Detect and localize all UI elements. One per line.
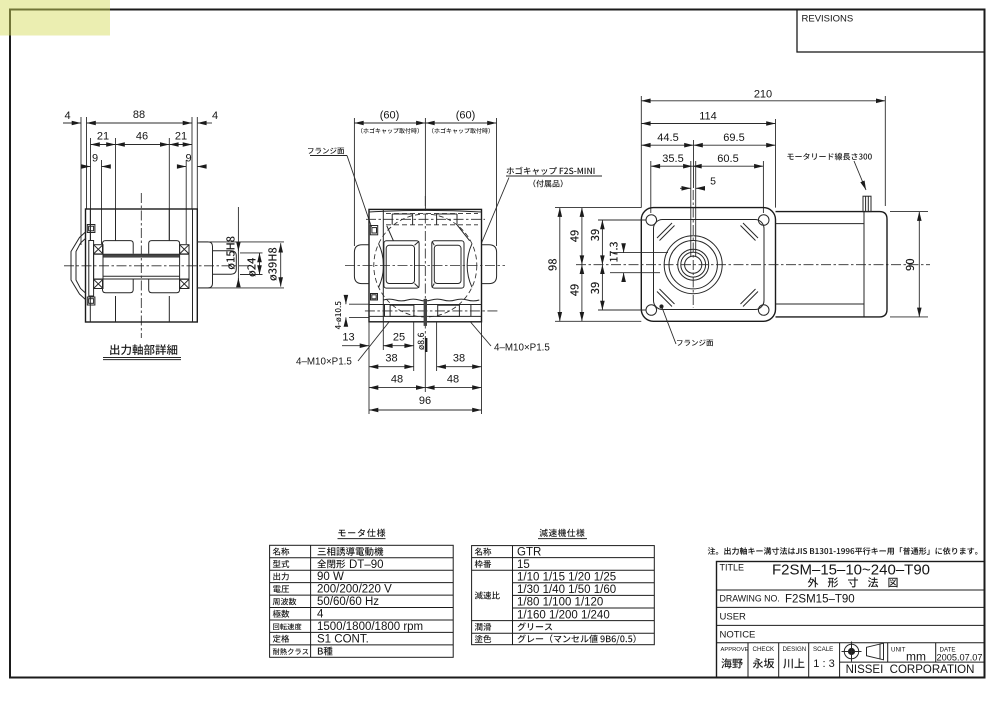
svg-text:REVISIONS: REVISIONS <box>802 14 854 25</box>
svg-text:4–M10×P1.5: 4–M10×P1.5 <box>296 357 352 368</box>
svg-text:46: 46 <box>136 131 148 143</box>
svg-text:38: 38 <box>385 353 397 365</box>
svg-text:SCALE: SCALE <box>813 646 833 653</box>
svg-text:114: 114 <box>699 111 717 123</box>
svg-text:1/10 1/15 1/20 1/25: 1/10 1/15 1/20 1/25 <box>517 572 616 584</box>
svg-text:48: 48 <box>391 374 403 386</box>
svg-text:GTR: GTR <box>517 547 541 559</box>
svg-text:DESIGN: DESIGN <box>783 646 807 653</box>
svg-text:4: 4 <box>317 609 324 621</box>
svg-text:1/160 1/200 1/240: 1/160 1/200 1/240 <box>517 609 610 621</box>
svg-text:NOTICE: NOTICE <box>720 630 756 641</box>
svg-text:200/200/220 V: 200/200/220 V <box>317 584 392 596</box>
svg-text:CHECK: CHECK <box>753 646 776 653</box>
svg-text:96: 96 <box>419 395 431 407</box>
svg-text:2005.07.07: 2005.07.07 <box>937 653 983 663</box>
svg-text:88: 88 <box>133 109 145 121</box>
svg-text:21: 21 <box>175 131 187 143</box>
svg-text:1500/1800/1800 rpm: 1500/1800/1800 rpm <box>317 621 423 633</box>
svg-text:60.5: 60.5 <box>717 153 738 165</box>
svg-text:APPROVE: APPROVE <box>721 647 749 653</box>
svg-text:TITLE: TITLE <box>720 563 745 573</box>
svg-text:S1 CONT.: S1 CONT. <box>317 633 369 645</box>
svg-text:1/80 1/100 1/120: 1/80 1/100 1/120 <box>517 597 603 609</box>
svg-text:USER: USER <box>720 612 747 623</box>
svg-text:(60): (60) <box>380 110 400 122</box>
svg-text:9: 9 <box>92 153 98 165</box>
svg-text:4: 4 <box>64 110 70 122</box>
svg-text:69.5: 69.5 <box>723 132 744 144</box>
svg-text:(60): (60) <box>456 110 476 122</box>
svg-text:15: 15 <box>517 559 530 571</box>
svg-text:210: 210 <box>754 89 772 101</box>
svg-text:UNIT: UNIT <box>891 647 906 654</box>
svg-text:48: 48 <box>447 374 459 386</box>
svg-text:90 W: 90 W <box>317 571 344 583</box>
svg-text:mm: mm <box>906 650 926 664</box>
svg-text:50/60/60 Hz: 50/60/60 Hz <box>317 596 379 608</box>
svg-text:F2SM15–T90: F2SM15–T90 <box>785 594 855 606</box>
svg-text:4–M10×P1.5: 4–M10×P1.5 <box>494 343 550 354</box>
svg-text:F2SM–15–10~240–T90: F2SM–15–10~240–T90 <box>772 562 930 579</box>
svg-text:1/30 1/40 1/50 1/60: 1/30 1/40 1/50 1/60 <box>517 584 616 596</box>
svg-text:38: 38 <box>453 353 465 365</box>
svg-text:25: 25 <box>393 332 405 344</box>
svg-text:1 : 3: 1 : 3 <box>813 658 834 670</box>
svg-text:5: 5 <box>710 176 716 188</box>
svg-text:DRAWING NO.: DRAWING NO. <box>720 594 780 604</box>
svg-text:44.5: 44.5 <box>657 132 678 144</box>
svg-text:21: 21 <box>97 131 109 143</box>
svg-text:4: 4 <box>212 110 218 122</box>
svg-text:13: 13 <box>342 332 354 344</box>
svg-text:NISSEI CORPORATION: NISSEI CORPORATION <box>846 664 975 676</box>
svg-text:DT–90: DT–90 <box>349 559 384 571</box>
svg-text:35.5: 35.5 <box>662 153 683 165</box>
